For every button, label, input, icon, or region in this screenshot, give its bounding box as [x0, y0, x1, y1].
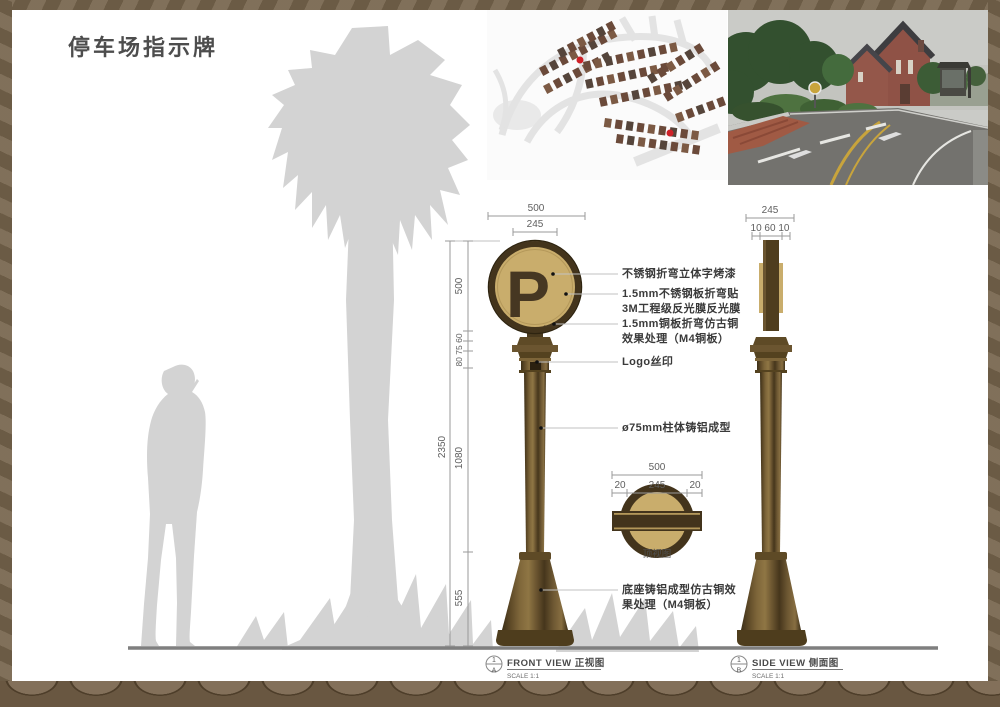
- frame-top: [0, 0, 1000, 10]
- callout-sign-panel: 1.5mm不锈钢板折弯贴 3M工程级反光膜反光膜: [622, 287, 741, 316]
- person-silhouette: [141, 365, 206, 646]
- side-base: [741, 560, 801, 630]
- frame-right: [988, 0, 1000, 707]
- svg-text:SCALE 1:1: SCALE 1:1: [507, 673, 540, 680]
- plan-location-marker-2: [667, 130, 674, 137]
- logo-plaque: [530, 362, 541, 370]
- svg-text:500: 500: [454, 277, 465, 294]
- site-plan-image: [487, 10, 727, 180]
- view-label-side: 1 B SIDE VIEW 侧面图 SCALE 1:1: [731, 656, 843, 680]
- photo-road-sign: [809, 82, 821, 94]
- svg-text:20: 20: [614, 480, 626, 491]
- site-photo: [728, 10, 993, 185]
- top-view: 顶视图: [612, 488, 702, 560]
- front-pole: [524, 372, 546, 552]
- dim-side-width: 245 10 60 10: [746, 205, 794, 240]
- plan-location-marker-1: [577, 57, 584, 64]
- callout-copper-panel: 1.5mm铜板折弯仿古铜 效果处理（M4铜板）: [622, 317, 739, 346]
- svg-text:SCALE 1:1: SCALE 1:1: [752, 673, 785, 680]
- direction-arrow-icon: →: [539, 309, 563, 336]
- front-view: P →: [489, 241, 582, 647]
- svg-text:1: 1: [492, 657, 496, 664]
- side-view: [737, 240, 807, 646]
- svg-text:245: 245: [527, 219, 544, 230]
- page-title: 停车场指示牌: [68, 30, 218, 62]
- dim-front-sign-width: 245: [513, 219, 557, 236]
- svg-text:20: 20: [689, 480, 701, 491]
- top-view-label: 顶视图: [643, 548, 672, 560]
- svg-text:500: 500: [528, 203, 545, 214]
- svg-text:245: 245: [649, 480, 666, 491]
- svg-text:245: 245: [762, 205, 779, 216]
- view-label-front: 1 A FRONT VIEW 正视图 SCALE 1:1: [486, 656, 605, 680]
- side-pole: [760, 372, 782, 552]
- svg-text:1: 1: [737, 657, 741, 664]
- callout-sign-letters: 不锈钢折弯立体字烤漆: [622, 267, 736, 282]
- dim-front-width: 500: [488, 203, 585, 220]
- svg-text:SIDE VIEW 侧面图: SIDE VIEW 侧面图: [752, 657, 839, 669]
- svg-text:80 75 60: 80 75 60: [454, 333, 464, 366]
- callout-base: 底座铸铝成型仿古铜效 果处理（M4铜板）: [622, 583, 736, 612]
- design-sheet: 停车场指示牌: [0, 0, 1000, 707]
- front-base: [502, 560, 568, 630]
- shrub-silhouette: [282, 568, 493, 650]
- svg-text:10 60 10: 10 60 10: [751, 223, 790, 234]
- svg-text:A: A: [492, 668, 497, 675]
- frame-bottom: [0, 681, 1000, 707]
- svg-text:B: B: [737, 668, 742, 675]
- photo-bus-shelter: [937, 62, 971, 98]
- frame-left: [0, 0, 12, 707]
- callout-pole: ø75mm柱体铸铝成型: [622, 421, 731, 436]
- svg-text:500: 500: [649, 462, 666, 473]
- callout-logo-print: Logo丝印: [622, 355, 673, 370]
- svg-text:FRONT VIEW 正视图: FRONT VIEW 正视图: [507, 657, 605, 669]
- svg-text:1080: 1080: [454, 446, 465, 469]
- svg-text:2350: 2350: [437, 435, 448, 458]
- svg-text:555: 555: [454, 589, 465, 606]
